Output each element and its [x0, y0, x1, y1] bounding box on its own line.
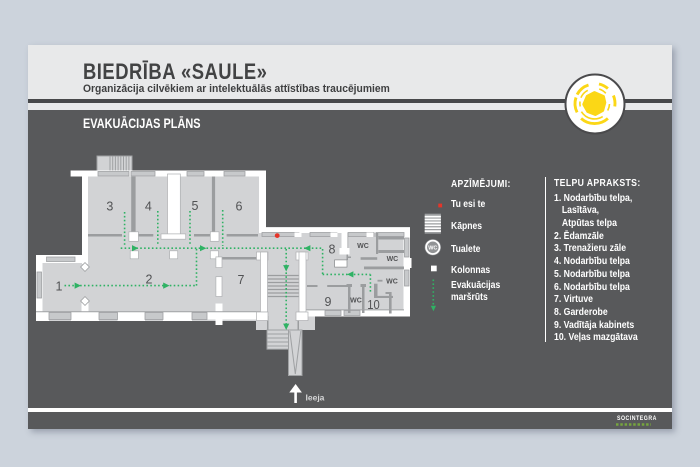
svg-text:6: 6 — [236, 200, 243, 214]
svg-text:4: 4 — [145, 200, 152, 214]
svg-text:WC: WC — [387, 256, 399, 263]
svg-text:7: 7 — [238, 273, 245, 287]
svg-text:WC: WC — [386, 279, 398, 286]
svg-text:WC: WC — [350, 298, 362, 305]
svg-text:9: 9 — [325, 295, 332, 309]
svg-text:10: 10 — [367, 298, 380, 312]
svg-text:8: 8 — [329, 243, 336, 257]
svg-text:3: 3 — [106, 200, 113, 214]
svg-text:2: 2 — [146, 273, 153, 287]
svg-text:5: 5 — [192, 199, 199, 213]
svg-text:WC: WC — [428, 246, 437, 252]
svg-text:1: 1 — [56, 280, 63, 294]
svg-text:Ieeja: Ieeja — [306, 393, 325, 403]
svg-text:WC: WC — [357, 243, 369, 250]
